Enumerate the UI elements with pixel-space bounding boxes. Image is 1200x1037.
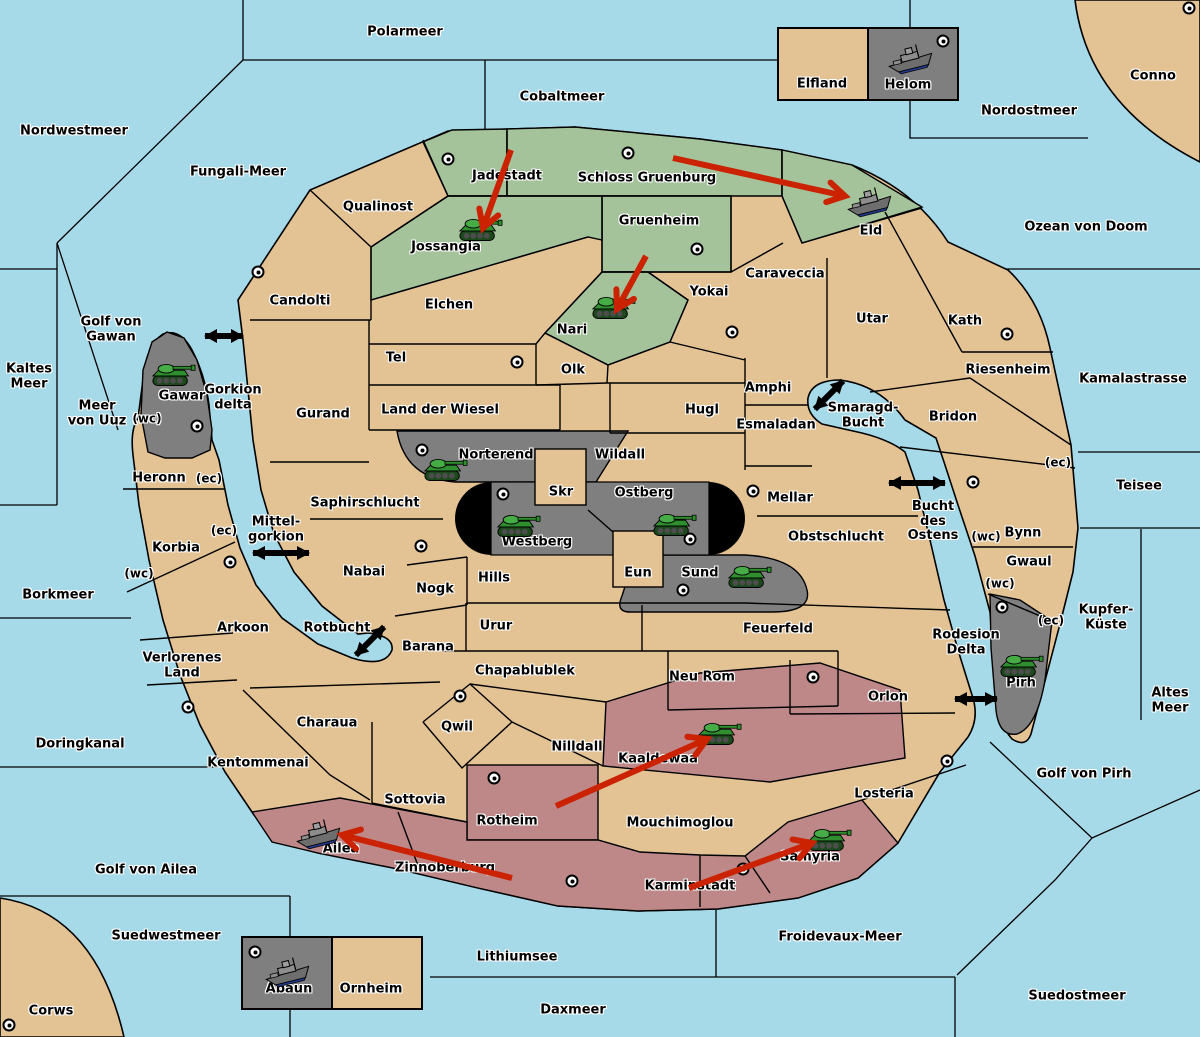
supply-center-icon-yokai — [726, 326, 739, 339]
territory-label-kaaldewaa[interactable]: Kaaldewaa — [618, 753, 698, 768]
army-tank-icon-kaaldewaa[interactable] — [696, 720, 742, 747]
territory-label-wildall[interactable]: Wildall — [595, 449, 645, 464]
sea-region-label-golf-von-ailea[interactable]: Golf von Ailea — [95, 864, 197, 879]
supply-center-icon-conno — [1183, 2, 1196, 15]
supply-center-icon-losteria — [941, 755, 954, 768]
territory-label-gurand[interactable]: Gurand — [296, 408, 350, 423]
territory-label-qualinost[interactable]: Qualinost — [343, 201, 413, 216]
territory-label-elchen[interactable]: Elchen — [425, 299, 473, 314]
coast-label-east: (ec) — [1045, 456, 1071, 469]
territory-label-neu-rom[interactable]: Neu Rom — [669, 671, 735, 686]
supply-center-icon-gawar — [191, 420, 204, 433]
fleet-ship-icon-eld[interactable] — [842, 181, 898, 221]
sea-region-label-rotbucht[interactable]: Rotbucht — [304, 622, 371, 637]
supply-center-icon-karminstadt — [737, 863, 750, 876]
territory-label-olk[interactable]: Olk — [561, 364, 585, 379]
sea-region-label-bucht-des-ostens[interactable]: Bucht des Ostens — [908, 500, 959, 544]
sea-region-label-nordwestmeer[interactable]: Nordwestmeer — [20, 125, 128, 140]
supply-center-icon-helom — [937, 35, 950, 48]
territory-label-verlorenes-land[interactable]: Verlorenes Land — [142, 651, 221, 680]
supply-center-icon-schloss-gruenburg — [622, 147, 635, 160]
supply-center-icon-qwil — [454, 690, 467, 703]
supply-center-icon-arkoon — [224, 556, 237, 569]
army-tank-icon-westberg[interactable] — [495, 512, 541, 539]
territory-label-karminstadt[interactable]: Karminstadt — [645, 880, 736, 895]
sea-region-label-ozean-von-doom[interactable]: Ozean von Doom — [1024, 221, 1147, 236]
sea-region-label-golf-von-gawan[interactable]: Golf von Gawan — [81, 315, 142, 344]
supply-center-icon-pirh — [996, 601, 1009, 614]
sea-region-label-kamalastrasse[interactable]: Kamalastrasse — [1079, 373, 1187, 388]
territory-label-kath[interactable]: Kath — [948, 315, 982, 330]
fleet-ship-icon-helom[interactable] — [883, 38, 939, 78]
territory-label-conno[interactable]: Conno — [1130, 70, 1176, 85]
territory-label-samyria[interactable]: Samyria — [780, 851, 840, 866]
territory-label-nilldall[interactable]: Nilldall — [551, 741, 602, 756]
territory-label-charaua[interactable]: Charaua — [297, 717, 358, 732]
sea-region-label-golf-von-pirh[interactable]: Golf von Pirh — [1036, 768, 1131, 783]
territory-label-hugl[interactable]: Hugl — [685, 404, 719, 419]
army-tank-icon-samyria[interactable] — [806, 826, 852, 853]
sea-region-label-doringkanal[interactable]: Doringkanal — [35, 738, 124, 753]
supply-center-icon-tel — [511, 356, 524, 369]
army-tank-icon-gawar[interactable] — [150, 361, 196, 388]
territory-label-losteria[interactable]: Losteria — [854, 788, 914, 803]
territory-label-gruenheim[interactable]: Gruenheim — [619, 215, 699, 230]
territory-label-barana[interactable]: Barana — [402, 641, 454, 656]
territory-label-heronn[interactable]: Heronn — [132, 472, 186, 487]
supply-center-icon-zinnoberburg — [566, 875, 579, 888]
supply-center-icon-kentommenai — [182, 701, 195, 714]
territory-label-schloss-gruenburg[interactable]: Schloss Gruenburg — [578, 172, 716, 187]
territory-label-qwil[interactable]: Qwil — [441, 721, 473, 736]
territory-label-jossangia[interactable]: Jossangia — [411, 241, 481, 256]
army-tank-icon-nari[interactable] — [590, 294, 636, 321]
coast-label-east: (ec) — [211, 524, 237, 537]
sea-region-label-gorkion-delta[interactable]: Gorkion delta — [204, 383, 261, 412]
sea-region-label-altes-meer[interactable]: Altes Meer — [1151, 686, 1188, 715]
coast-label-west: (wc) — [985, 577, 1014, 590]
sea-region-label-kaltes-meer[interactable]: Kaltes Meer — [6, 362, 52, 391]
sea-region-label-meer-von-uuz[interactable]: Meer von Uuz — [68, 399, 127, 428]
army-tank-icon-norterend[interactable] — [422, 456, 468, 483]
territory-label-arkoon[interactable]: Arkoon — [217, 622, 269, 637]
territory-label-amphi[interactable]: Amphi — [745, 382, 792, 397]
territory-label-eun[interactable]: Eun — [624, 567, 651, 582]
army-tank-icon-sund[interactable] — [726, 563, 772, 590]
sea-region-label-rodesion-delta[interactable]: Rodesion Delta — [932, 628, 999, 657]
territory-label-yokai[interactable]: Yokai — [689, 286, 728, 301]
game-map: PolarmeerCobaltmeerNordostmeerNordwestme… — [0, 0, 1200, 1037]
territory-label-land-der-wiesel[interactable]: Land der Wiesel — [381, 404, 499, 419]
supply-center-icon-candolti — [252, 266, 265, 279]
map-label-layer: PolarmeerCobaltmeerNordostmeerNordwestme… — [0, 0, 1200, 1037]
territory-label-mouchimoglou[interactable]: Mouchimoglou — [627, 817, 734, 832]
territory-label-saphirschlucht[interactable]: Saphirschlucht — [310, 497, 419, 512]
territory-label-corws[interactable]: Corws — [29, 1005, 74, 1020]
territory-label-korbia[interactable]: Korbia — [152, 542, 200, 557]
territory-label-candolti[interactable]: Candolti — [270, 295, 331, 310]
territory-label-gwaul[interactable]: Gwaul — [1006, 556, 1051, 571]
supply-center-icon-mellar — [747, 485, 760, 498]
supply-center-icon-neu-rom — [807, 671, 820, 684]
sea-region-label-daxmeer[interactable]: Daxmeer — [540, 1004, 606, 1019]
supply-center-icon-gruenheim — [691, 243, 704, 256]
sea-region-label-fungali-meer[interactable]: Fungali-Meer — [190, 166, 286, 181]
territory-label-skr[interactable]: Skr — [549, 486, 573, 501]
territory-label-chapablublek[interactable]: Chapablublek — [475, 665, 575, 680]
territory-label-esmaladan[interactable]: Esmaladan — [736, 419, 816, 434]
territory-label-elfland[interactable]: Elfland — [797, 78, 847, 93]
territory-label-nari[interactable]: Nari — [557, 324, 588, 339]
territory-label-orlon[interactable]: Orlon — [868, 691, 908, 706]
territory-label-pirh[interactable]: Pirh — [1006, 677, 1036, 692]
coast-label-west: (wc) — [124, 567, 153, 580]
sea-region-label-polarmeer[interactable]: Polarmeer — [367, 26, 443, 41]
territory-label-obstschlucht[interactable]: Obstschlucht — [788, 531, 884, 546]
coast-label-east: (ec) — [196, 472, 222, 485]
territory-label-nabai[interactable]: Nabai — [343, 566, 385, 581]
territory-label-rotheim[interactable]: Rotheim — [476, 815, 537, 830]
army-tank-icon-jossangia[interactable] — [457, 216, 503, 243]
supply-center-icon-rotheim — [488, 772, 501, 785]
territory-label-feuerfeld[interactable]: Feuerfeld — [743, 623, 813, 638]
coast-label-west: (wc) — [132, 412, 161, 425]
sea-region-label-smaragd-bucht[interactable]: Smaragd- Bucht — [828, 401, 899, 430]
territory-label-bynn[interactable]: Bynn — [1005, 527, 1042, 542]
sea-region-label-cobaltmeer[interactable]: Cobaltmeer — [520, 91, 605, 106]
supply-center-icon-nabai — [415, 540, 428, 553]
coast-label-west: (wc) — [971, 530, 1000, 543]
territory-label-helom[interactable]: Helom — [885, 79, 932, 94]
territory-label-tel[interactable]: Tel — [386, 352, 406, 367]
territory-label-bridon[interactable]: Bridon — [929, 411, 977, 426]
territory-label-urur[interactable]: Urur — [480, 620, 513, 635]
territory-label-gawar[interactable]: Gawar — [159, 390, 206, 405]
supply-center-icon-abaun — [249, 946, 262, 959]
supply-center-icon-westberg — [497, 488, 510, 501]
coast-label-east: (ec) — [1038, 614, 1064, 627]
territory-label-eld[interactable]: Eld — [860, 225, 883, 240]
territory-label-zinnoberburg[interactable]: Zinnoberburg — [395, 862, 495, 877]
territory-label-caraveccia[interactable]: Caraveccia — [745, 268, 824, 283]
territory-label-jadestadt[interactable]: Jadestadt — [472, 170, 542, 185]
territory-label-riesenheim[interactable]: Riesenheim — [965, 364, 1050, 379]
supply-center-icon-sund — [677, 584, 690, 597]
territory-label-sund[interactable]: Sund — [681, 567, 718, 582]
sea-region-label-kupfer-k-ste[interactable]: Kupfer- Küste — [1079, 603, 1134, 632]
sea-region-label-nordostmeer[interactable]: Nordostmeer — [981, 105, 1077, 120]
army-tank-icon-pirh[interactable] — [998, 652, 1044, 679]
supply-center-icon-jadestadt — [442, 153, 455, 166]
sea-region-label-mittel-gorkion[interactable]: Mittel- gorkion — [248, 515, 304, 544]
supply-center-icon-corws — [3, 1019, 16, 1032]
territory-label-ostberg[interactable]: Ostberg — [615, 487, 674, 502]
sea-region-label-lithiumsee[interactable]: Lithiumsee — [477, 951, 558, 966]
territory-label-norterend[interactable]: Norterend — [458, 449, 533, 464]
territory-label-mellar[interactable]: Mellar — [767, 492, 813, 507]
territory-label-hills[interactable]: Hills — [478, 572, 510, 587]
sea-region-label-froidevaux-meer[interactable]: Froidevaux-Meer — [778, 931, 901, 946]
territory-label-utar[interactable]: Utar — [856, 313, 888, 328]
sea-region-label-suedostmeer[interactable]: Suedostmeer — [1028, 990, 1125, 1005]
army-tank-icon-ostberg[interactable] — [651, 511, 697, 538]
sea-region-label-teisee[interactable]: Teisee — [1116, 480, 1162, 495]
territory-label-ornheim[interactable]: Ornheim — [340, 983, 403, 998]
sea-region-label-borkmeer[interactable]: Borkmeer — [22, 589, 94, 604]
supply-center-icon-kath — [1001, 328, 1014, 341]
sea-region-label-suedwestmeer[interactable]: Suedwestmeer — [111, 930, 220, 945]
territory-label-nogk[interactable]: Nogk — [416, 583, 454, 598]
supply-center-icon-bynn — [967, 476, 980, 489]
territory-label-sottovia[interactable]: Sottovia — [384, 794, 445, 809]
territory-label-kentommenai[interactable]: Kentommenai — [207, 757, 308, 772]
